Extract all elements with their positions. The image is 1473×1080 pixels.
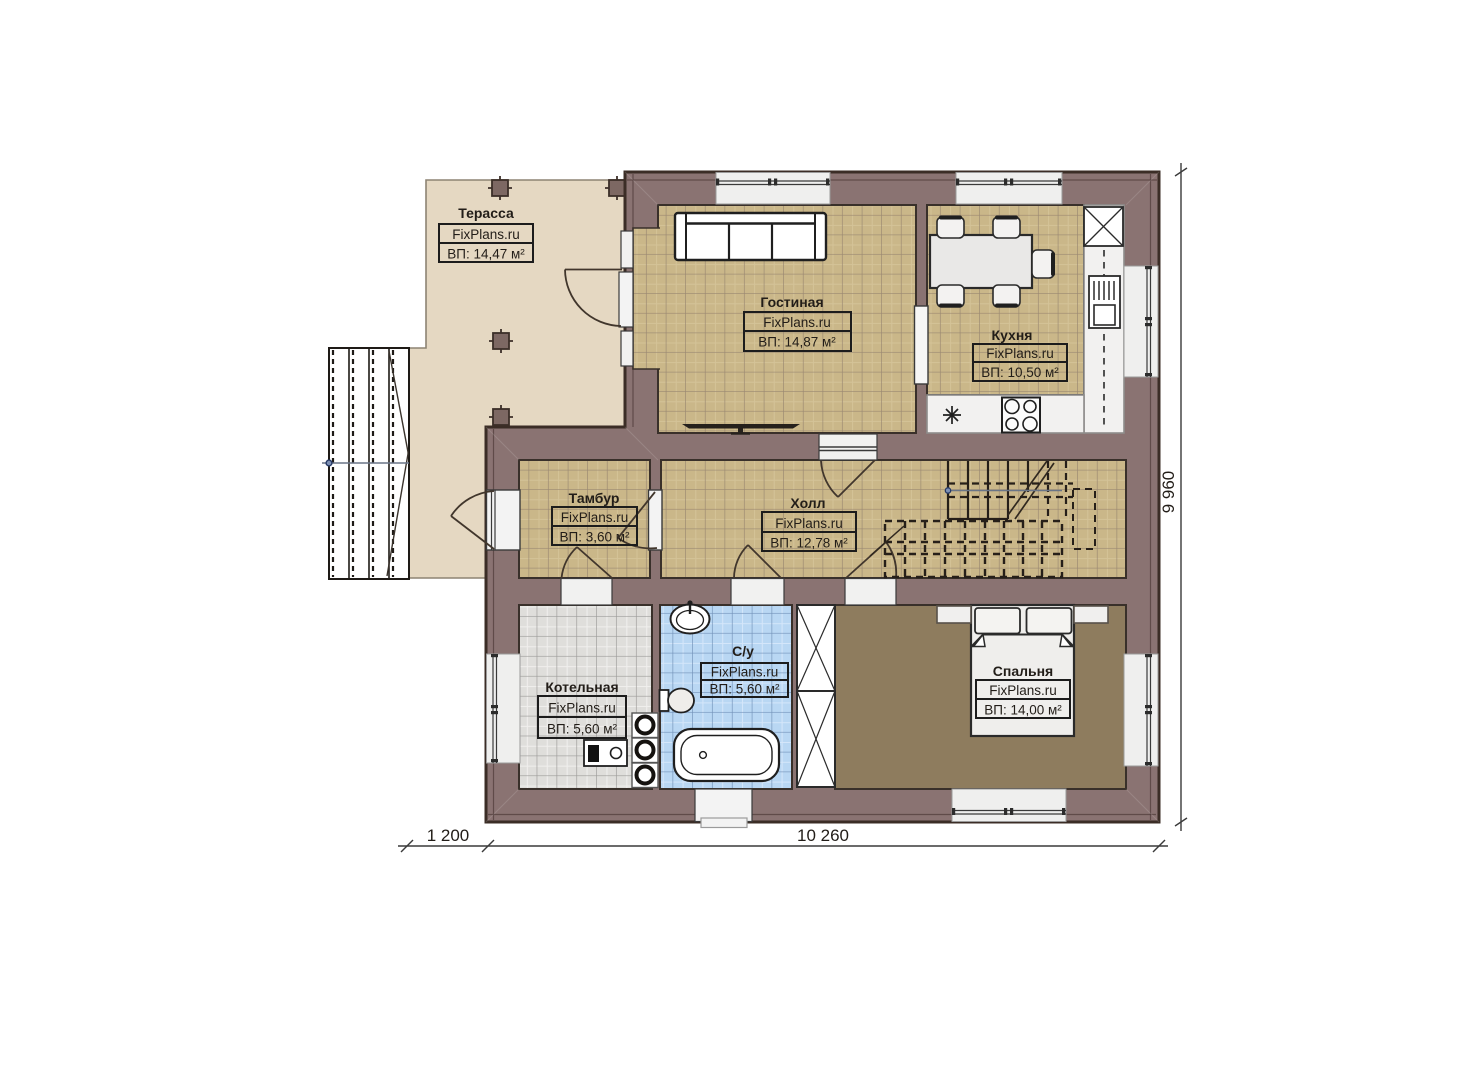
- svg-text:FixPlans.ru: FixPlans.ru: [452, 227, 520, 242]
- svg-text:Котельная: Котельная: [545, 679, 618, 695]
- svg-text:Кухня: Кухня: [992, 327, 1033, 343]
- svg-text:FixPlans.ru: FixPlans.ru: [763, 315, 831, 330]
- svg-text:1 200: 1 200: [427, 826, 470, 845]
- svg-text:FixPlans.ru: FixPlans.ru: [775, 516, 843, 531]
- svg-text:ВП: 5,60 м²: ВП: 5,60 м²: [709, 682, 780, 697]
- svg-text:FixPlans.ru: FixPlans.ru: [989, 683, 1057, 698]
- svg-text:ВП: 5,60 м²: ВП: 5,60 м²: [547, 722, 618, 737]
- svg-text:9 960: 9 960: [1159, 471, 1178, 514]
- svg-text:Гостиная: Гостиная: [760, 294, 823, 310]
- svg-text:ВП: 12,78 м²: ВП: 12,78 м²: [770, 536, 848, 551]
- svg-text:FixPlans.ru: FixPlans.ru: [548, 701, 616, 716]
- svg-text:С/у: С/у: [732, 643, 754, 659]
- svg-text:FixPlans.ru: FixPlans.ru: [986, 346, 1054, 361]
- svg-text:FixPlans.ru: FixPlans.ru: [561, 510, 629, 525]
- svg-text:Холл: Холл: [790, 495, 825, 511]
- svg-text:Спальня: Спальня: [993, 663, 1053, 679]
- svg-text:ВП: 14,00 м²: ВП: 14,00 м²: [984, 703, 1062, 718]
- svg-text:Тамбур: Тамбур: [569, 490, 620, 506]
- svg-text:ВП: 10,50 м²: ВП: 10,50 м²: [981, 365, 1059, 380]
- svg-text:Терасса: Терасса: [458, 205, 514, 221]
- svg-text:ВП: 3,60 м²: ВП: 3,60 м²: [559, 530, 630, 545]
- svg-text:10 260: 10 260: [797, 826, 849, 845]
- svg-text:ВП: 14,87 м²: ВП: 14,87 м²: [758, 335, 836, 350]
- svg-text:ВП: 14,47 м²: ВП: 14,47 м²: [447, 247, 525, 262]
- svg-text:FixPlans.ru: FixPlans.ru: [711, 665, 779, 680]
